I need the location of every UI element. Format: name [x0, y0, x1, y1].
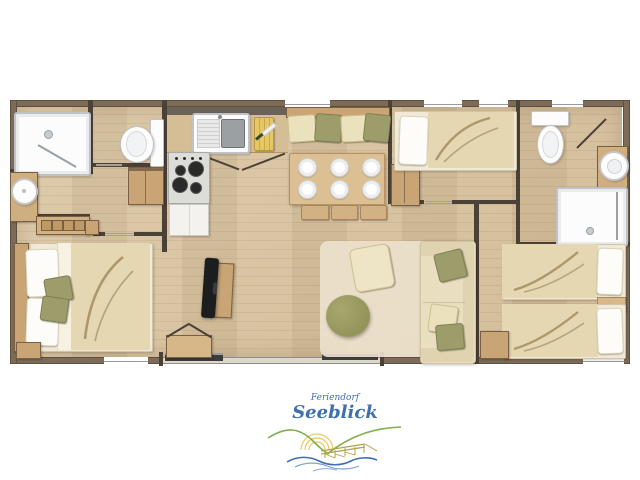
bedroom3-sliding-door [425, 201, 452, 202]
stool [301, 205, 329, 220]
toilet-bowl-inner [126, 131, 147, 157]
blanket-fold-icon [502, 244, 598, 298]
foot-bench [16, 342, 41, 359]
hall-cabinet [128, 167, 164, 205]
bed-blanket [502, 244, 598, 298]
toilet-bowl-inner [542, 131, 559, 158]
small-cabinet [85, 220, 99, 235]
bedroom-sliding-door [105, 235, 134, 236]
burner-icon [188, 161, 204, 177]
kitchen-cabinet [169, 204, 209, 236]
window-icon [479, 100, 508, 107]
stove-knob [183, 157, 186, 160]
bench-slat [52, 220, 63, 231]
shower-drain-icon [586, 227, 594, 235]
toilet-tank [531, 111, 569, 126]
toilet-2 [531, 111, 567, 165]
burner-icon [190, 182, 202, 194]
bedroom-sliding-door [105, 233, 134, 234]
storage-box [166, 335, 212, 358]
wardrobe-seam [404, 167, 405, 203]
bed-blanket [502, 304, 598, 357]
toilet [118, 118, 164, 168]
bench-slat [41, 220, 52, 231]
window-icon [285, 100, 330, 107]
bed-pillow [596, 248, 624, 296]
cabinet-divider [145, 171, 146, 204]
shower-drain-icon [44, 130, 53, 139]
drain-icon [22, 189, 26, 193]
floorplan-image: Feriendorf Seeblick [0, 0, 640, 480]
drainboard [197, 119, 220, 148]
plate-icon [330, 158, 349, 177]
bed-blanket [428, 112, 514, 168]
window-icon [424, 100, 462, 107]
stove-knob [191, 157, 194, 160]
kitchen-sink [192, 113, 250, 154]
seat-cushion [363, 113, 392, 144]
bench-slat [63, 220, 74, 231]
cabinet-seam [189, 205, 190, 235]
plate-icon [362, 158, 381, 177]
stool [331, 205, 358, 220]
sofa-seam [423, 302, 465, 303]
blanket-fold-icon [71, 243, 150, 350]
wall-bedroom3-south-b [452, 200, 520, 204]
seat-cushion [314, 113, 343, 143]
twin-cabinet [480, 331, 509, 359]
door-jamb [159, 352, 163, 366]
washbasin-2 [599, 151, 629, 181]
seat-cushion [287, 114, 317, 143]
stool [360, 205, 387, 220]
tv-notch [213, 282, 218, 294]
faucet-icon [218, 115, 222, 119]
window-icon [552, 100, 583, 107]
bedroom3-sliding-door [425, 203, 452, 204]
plate-icon [298, 158, 317, 177]
brand-logo-name-text: Seeblick [250, 403, 420, 423]
shower-tray-2 [556, 187, 628, 247]
washbasin [11, 178, 38, 205]
basin-inner [607, 159, 622, 174]
plate-icon [362, 180, 381, 199]
shower-squeegee [38, 144, 77, 168]
blanket-fold-icon [502, 304, 598, 357]
bench-slat [74, 220, 85, 231]
burner-icon [172, 177, 188, 193]
brand-logo: Feriendorf Seeblick [250, 394, 420, 474]
floor-cushion [348, 243, 395, 293]
plate-icon [298, 180, 317, 199]
lake-scene-icon [265, 424, 405, 474]
shower-rail [616, 192, 618, 240]
towel-bench [36, 216, 90, 235]
bed-pillow [398, 116, 429, 166]
sink-basin [221, 119, 245, 148]
sofa-pillow [435, 323, 465, 351]
wall-bedroom-hall-b [134, 232, 167, 236]
bed-blanket [71, 243, 150, 350]
blanket-fold-icon [428, 112, 514, 168]
shower-tray [14, 112, 91, 176]
stove-knob [175, 157, 178, 160]
plate-icon [330, 180, 349, 199]
burner-icon [175, 165, 186, 176]
window-icon [104, 357, 148, 364]
stove [168, 152, 210, 204]
pouf [326, 295, 370, 337]
bed-pillow [596, 308, 624, 355]
stove-knob [199, 157, 202, 160]
bed-cushion [39, 295, 69, 324]
